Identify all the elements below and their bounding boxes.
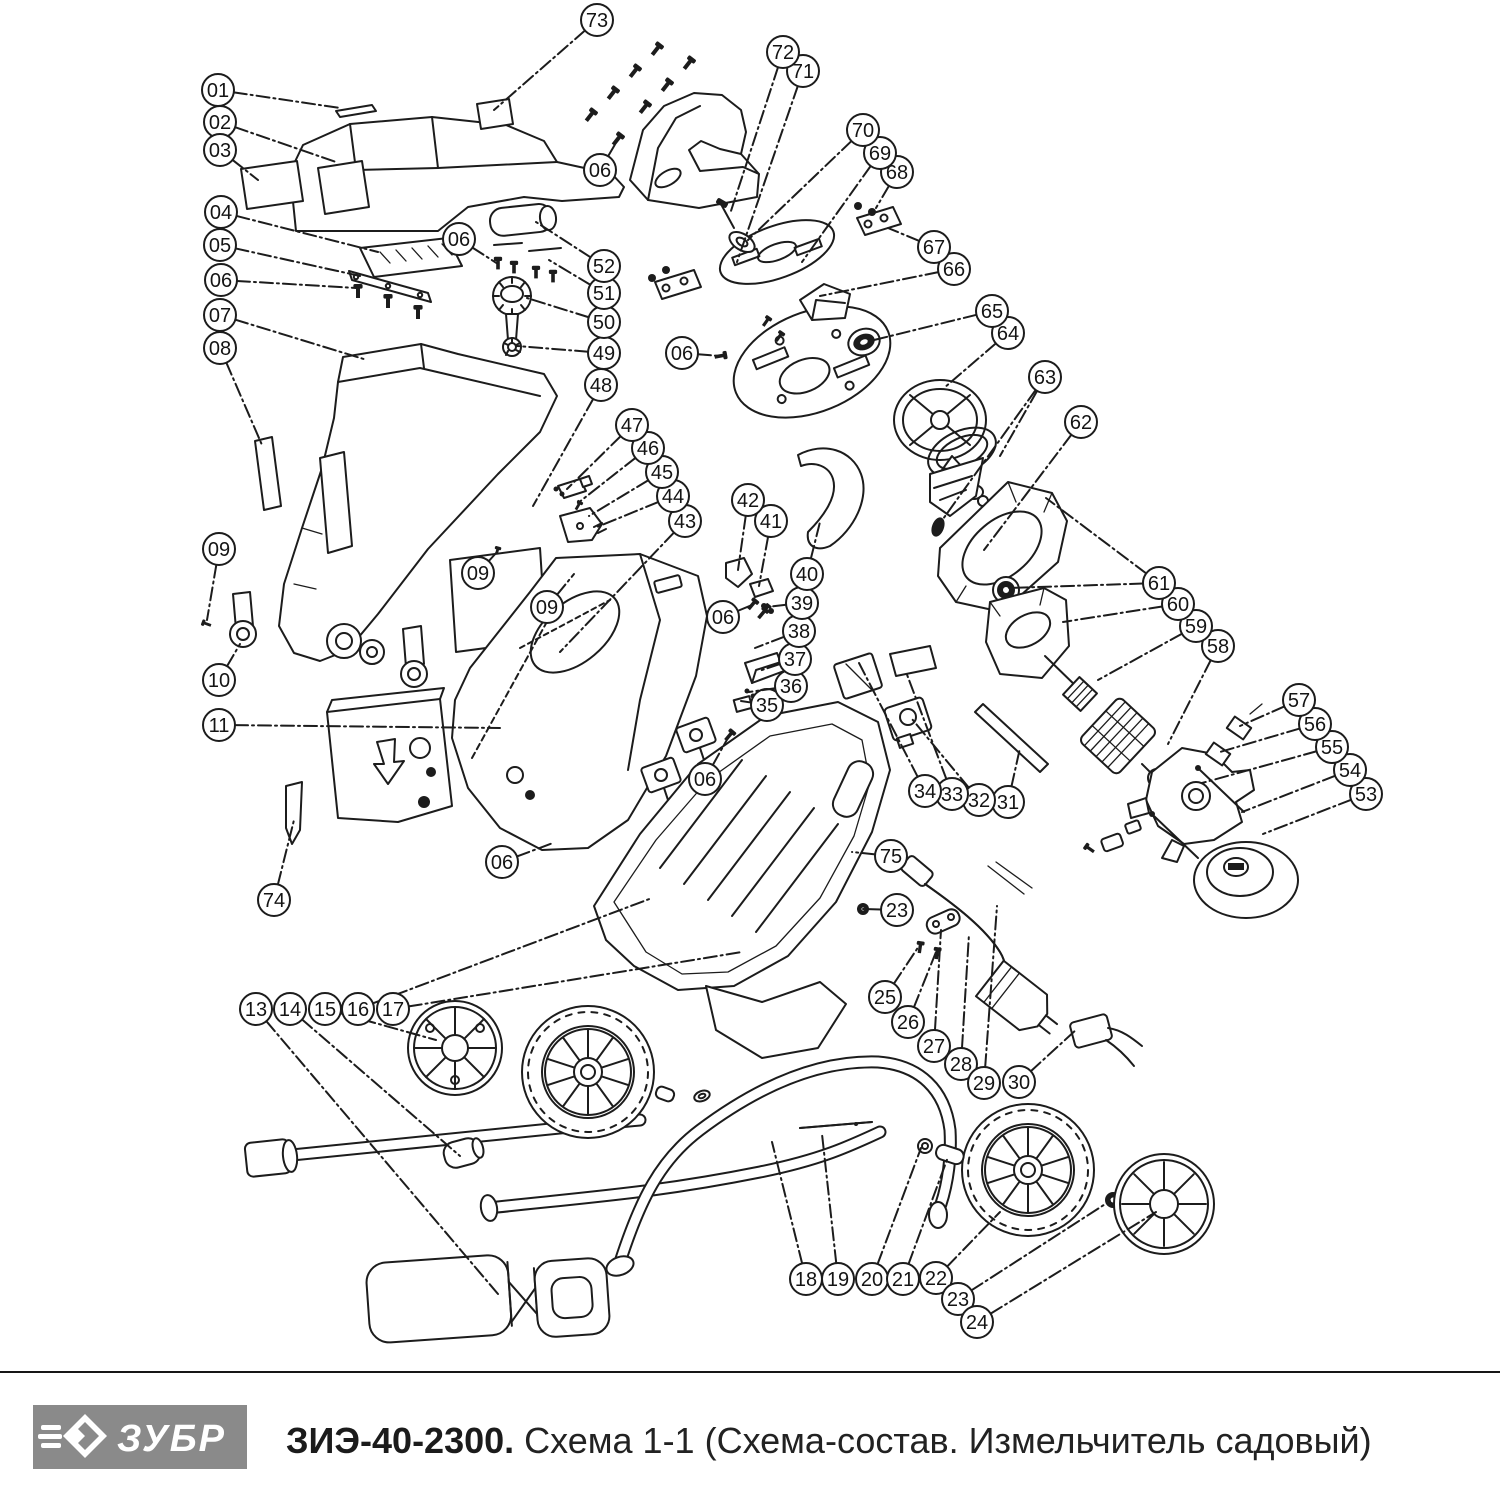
leader-line-58 [1168,660,1211,744]
callout-label-26: 26 [897,1012,919,1034]
footer-divider [0,1371,1500,1373]
label-lens-01 [336,105,376,117]
callout-label-36: 36 [780,676,802,698]
callout-label-64: 64 [997,323,1019,345]
callout-label-60: 60 [1167,594,1189,616]
part-chute-40 [798,448,864,548]
callout-label-31: 31 [997,792,1019,814]
part-wheel-left [522,1006,654,1138]
callout-label-13: 13 [245,999,267,1021]
callout-label-14: 14 [279,999,301,1021]
leader-line-31 [1011,748,1020,786]
callout-label-52: 52 [593,256,615,278]
model-number: ЗИЭ-40-2300. [286,1420,514,1461]
callout-label-15: 15 [314,999,336,1021]
part-wedge-74 [286,782,302,844]
label-sticker-73 [477,99,513,129]
part-intake-funnel [630,93,759,208]
leader-line-27 [935,930,941,1030]
callout-label-42: 42 [737,490,759,512]
leader-line-57 [1240,706,1284,726]
leader-line-28 [962,934,969,1048]
leader-line-45 [589,480,648,516]
part-pin-washer-left [654,1085,711,1103]
leader-line-06 [237,281,356,288]
zubr-logo-icon: ЗУБР [33,1405,247,1469]
part-connector-30 [1069,1014,1142,1066]
callout-label-67: 67 [923,237,945,259]
part-clamp-plate-left [648,266,701,299]
leader-line-38 [755,637,784,648]
callout-label-06: 06 [448,229,470,251]
callout-label-53: 53 [1355,784,1377,806]
callout-label-09: 09 [467,563,489,585]
part-pins-51 [494,243,561,251]
callout-label-30: 30 [1008,1072,1030,1094]
callout-label-50: 50 [593,312,615,334]
leader-line-07 [235,320,367,360]
part-bar-31 [975,704,1048,772]
part-clip-41 [750,579,773,597]
callout-label-23: 23 [886,900,908,922]
leader-line-25 [894,946,919,984]
screws-25-26 [915,941,941,960]
callout-label-57: 57 [1288,690,1310,712]
latch-parts [554,476,607,542]
callout-label-21: 21 [892,1269,914,1291]
callout-label-69: 69 [869,143,891,165]
callout-label-06: 06 [671,343,693,365]
leader-line-66 [820,272,938,296]
callout-label-55: 55 [1321,737,1343,759]
callout-label-09: 09 [208,539,230,561]
part-brush-block [986,588,1069,678]
callout-label-27: 27 [923,1036,945,1058]
part-blade-plate-upper [712,207,843,297]
callout-label-28: 28 [950,1054,972,1076]
callout-label-08: 08 [209,338,231,360]
leader-line-63 [1000,391,1037,456]
leader-line-64 [944,343,996,388]
callout-label-40: 40 [796,564,818,586]
callout-label-72: 72 [772,42,794,64]
brand-name: ЗУБР [117,1418,226,1460]
callout-label-06: 06 [712,607,734,629]
callout-label-56: 56 [1304,714,1326,736]
leader-line-30 [1031,1029,1077,1071]
callout-label-49: 49 [593,343,615,365]
callout-label-06: 06 [210,270,232,292]
callout-label-43: 43 [674,511,696,533]
part-brush-57 [1227,704,1262,739]
leader-line-54 [1242,776,1335,812]
part-hubcap-left [408,1001,502,1095]
callout-label-25: 25 [874,987,896,1009]
part-switch [884,697,933,748]
brand-logo: ЗУБР [33,1405,247,1469]
leader-line-08 [226,363,262,445]
part-lock-lever-left [230,592,256,647]
callout-label-34: 34 [914,781,936,803]
leader-line-26 [914,952,936,1007]
callout-label-46: 46 [637,438,659,460]
part-axle-rod [800,1122,872,1128]
callout-label-61: 61 [1148,573,1170,595]
part-cone-63 [930,458,983,516]
leader-line-60 [1063,606,1162,622]
part-cap-plate [890,646,936,676]
callout-label-22: 22 [925,1268,947,1290]
callout-label-06: 06 [694,769,716,791]
part-access-door [327,688,452,822]
callout-label-18: 18 [795,1269,817,1291]
callout-label-35: 35 [756,695,778,717]
callout-label-71: 71 [792,61,814,83]
leader-line-50 [527,298,589,317]
callout-label-04: 04 [210,202,232,224]
part-fan-53 [1194,842,1298,918]
callout-label-65: 65 [981,301,1003,323]
leader-line-05 [236,248,360,276]
label-strip-08 [255,437,281,510]
callout-label-32: 32 [968,790,990,812]
leader-line-67 [888,228,919,241]
callout-label-06: 06 [491,852,513,874]
callout-label-10: 10 [208,670,230,692]
callout-label-63: 63 [1034,367,1056,389]
part-washer-pin-right [918,1139,965,1166]
leader-line-06 [472,248,498,264]
part-hubcap-right [1114,1154,1214,1254]
leader-line-53 [1263,800,1351,834]
callout-label-73: 73 [586,10,608,32]
callout-label-20: 20 [861,1269,883,1291]
page: 0102030405060708091011741314151617181920… [0,0,1500,1500]
callout-label-48: 48 [590,375,612,397]
callout-label-44: 44 [662,486,684,508]
part-knob [493,277,531,340]
label-sticker-03 [241,161,303,209]
leader-line-16 [373,898,652,1003]
leader-line-68 [876,186,889,208]
callout-label-24: 24 [966,1312,988,1334]
schematic-subtitle: Схема 1-1 (Схема-состав. Измельчитель са… [514,1420,1371,1461]
leader-line-73 [494,31,585,110]
callout-label-07: 07 [209,305,231,327]
leader-line-06 [698,354,720,356]
callout-label-54: 54 [1339,760,1361,782]
callout-label-29: 29 [973,1073,995,1095]
callout-label-59: 59 [1185,616,1207,638]
leader-line-69 [802,166,871,262]
callout-label-39: 39 [791,593,813,615]
part-bottom-flap [706,982,846,1058]
schematic-title: ЗИЭ-40-2300. Схема 1-1 (Схема-состав. Из… [286,1420,1372,1462]
callout-label-47: 47 [621,415,643,437]
part-clamp-27 [924,907,962,936]
callout-label-16: 16 [347,999,369,1021]
callout-label-17: 17 [382,999,404,1021]
callout-label-66: 66 [943,259,965,281]
leader-line-01 [234,92,340,108]
leader-line-47 [567,436,621,489]
part-power-cable [900,854,1032,984]
callout-label-09: 09 [536,597,558,619]
part-pusher [365,1247,610,1350]
callout-label-23: 23 [947,1289,969,1311]
part-top-cover [290,117,624,231]
callout-label-02: 02 [209,112,231,134]
part-lock-lever-mid [401,626,427,687]
callout-label-37: 37 [784,649,806,671]
leader-line-59 [1098,634,1182,680]
callout-label-51: 51 [593,283,615,305]
callout-label-58: 58 [1207,636,1229,658]
callout-label-11: 11 [209,715,230,737]
callout-label-41: 41 [760,511,782,533]
callout-label-05: 05 [209,235,231,257]
callout-label-62: 62 [1070,412,1092,434]
callout-label-74: 74 [263,890,285,912]
callout-label-70: 70 [852,120,874,142]
small-parts-55 [1083,820,1142,855]
callout-label-33: 33 [941,784,963,806]
callout-label-03: 03 [209,140,231,162]
leader-line-10 [227,644,240,666]
callout-label-75: 75 [880,846,902,868]
leader-line-52 [536,222,591,257]
part-wheel-right [962,1104,1094,1236]
callout-label-38: 38 [788,621,810,643]
exploded-parts-diagram: 0102030405060708091011741314151617181920… [0,0,1500,1372]
part-roller [489,203,558,237]
leader-line-49 [517,346,588,352]
callout-label-06: 06 [589,160,611,182]
callout-label-45: 45 [651,462,673,484]
leader-line-09 [207,565,216,620]
leader-line-22 [947,1212,1000,1267]
callout-label-01: 01 [207,80,229,102]
callout-label-19: 19 [827,1269,849,1291]
